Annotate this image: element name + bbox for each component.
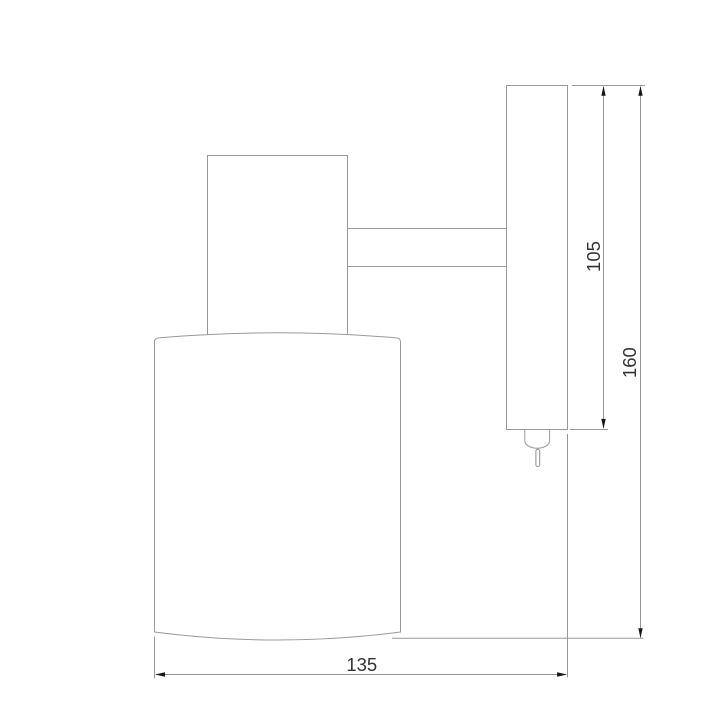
svg-text:160: 160 <box>619 347 640 378</box>
svg-text:105: 105 <box>583 241 604 272</box>
svg-text:135: 135 <box>346 654 377 675</box>
